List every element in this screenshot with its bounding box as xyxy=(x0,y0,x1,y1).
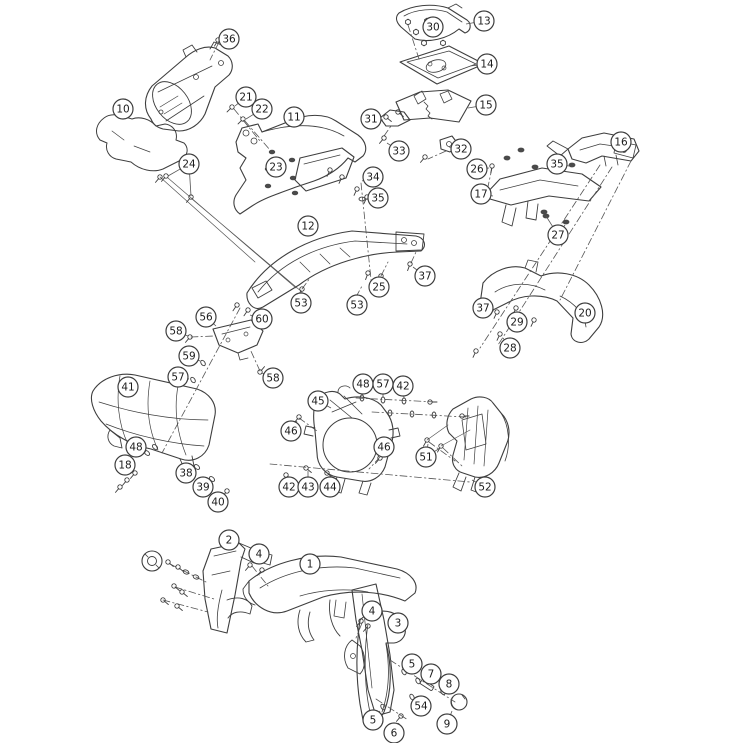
callout-16[interactable]: 16 xyxy=(611,132,631,152)
svg-text:59: 59 xyxy=(182,351,195,363)
svg-text:21: 21 xyxy=(239,92,252,104)
part-14-bottom-plate xyxy=(400,46,484,84)
nut-icon xyxy=(406,19,411,25)
callout-24[interactable]: 24 xyxy=(179,154,199,174)
screw-icon xyxy=(114,484,123,494)
callout-59[interactable]: 59 xyxy=(179,346,199,366)
callout-2[interactable]: 2 xyxy=(219,530,239,550)
callout-48[interactable]: 48 xyxy=(126,437,146,457)
svg-text:11: 11 xyxy=(287,112,300,124)
callout-labels: 3610212211242312133014153133321635261734… xyxy=(113,11,631,743)
rubber-washer-icon xyxy=(532,165,539,170)
callout-37[interactable]: 37 xyxy=(415,266,435,286)
callout-53[interactable]: 53 xyxy=(291,293,311,313)
svg-text:7: 7 xyxy=(428,669,435,681)
svg-text:53: 53 xyxy=(350,300,363,312)
callout-5[interactable]: 5 xyxy=(402,654,422,674)
svg-text:25: 25 xyxy=(372,282,385,294)
svg-text:20: 20 xyxy=(578,308,591,320)
svg-text:48: 48 xyxy=(356,379,369,391)
svg-text:42: 42 xyxy=(282,482,295,494)
svg-text:48: 48 xyxy=(129,442,142,454)
svg-text:29: 29 xyxy=(510,317,523,329)
svg-text:54: 54 xyxy=(414,701,428,713)
svg-text:6: 6 xyxy=(391,728,398,740)
rubber-washer-icon xyxy=(563,220,570,225)
screw-icon xyxy=(244,562,253,572)
callout-12[interactable]: 12 xyxy=(298,216,318,236)
svg-text:5: 5 xyxy=(409,659,416,671)
callout-17[interactable]: 17 xyxy=(471,184,491,204)
callout-18[interactable]: 18 xyxy=(115,455,135,475)
callout-25[interactable]: 25 xyxy=(369,277,389,297)
callout-54[interactable]: 54 xyxy=(411,696,431,716)
screw-icon xyxy=(406,261,413,271)
callout-8[interactable]: 8 xyxy=(439,674,459,694)
callout-51[interactable]: 51 xyxy=(416,447,436,467)
callout-33[interactable]: 33 xyxy=(389,141,409,161)
callout-57-2[interactable]: 57 xyxy=(373,374,393,394)
svg-text:8: 8 xyxy=(446,679,453,691)
callout-leader xyxy=(190,174,191,196)
screw-icon xyxy=(395,713,404,723)
callout-5-2[interactable]: 5 xyxy=(363,710,383,730)
callout-46-2[interactable]: 46 xyxy=(374,437,394,457)
rubber-washer-icon xyxy=(504,156,511,161)
svg-text:41: 41 xyxy=(121,382,134,394)
callout-57[interactable]: 57 xyxy=(168,367,188,387)
callout-leader xyxy=(413,267,417,270)
callout-35-2[interactable]: 35 xyxy=(368,188,388,208)
svg-text:12: 12 xyxy=(301,221,314,233)
svg-text:57: 57 xyxy=(376,379,389,391)
svg-text:34: 34 xyxy=(366,172,380,184)
svg-text:14: 14 xyxy=(480,59,494,71)
callout-36[interactable]: 36 xyxy=(219,29,239,49)
svg-text:4: 4 xyxy=(256,549,263,561)
callout-leader xyxy=(470,65,477,66)
rubber-washer-icon xyxy=(518,148,525,153)
svg-text:51: 51 xyxy=(419,452,432,464)
callout-28[interactable]: 28 xyxy=(500,338,520,358)
callout-23[interactable]: 23 xyxy=(266,157,286,177)
svg-text:45: 45 xyxy=(311,396,324,408)
svg-text:36: 36 xyxy=(222,34,236,46)
screw-icon xyxy=(185,194,194,204)
callout-15[interactable]: 15 xyxy=(476,95,496,115)
callout-26[interactable]: 26 xyxy=(467,159,487,179)
part-9-cap xyxy=(451,694,467,710)
screw-icon xyxy=(165,559,175,568)
svg-text:23: 23 xyxy=(269,162,282,174)
screw-icon xyxy=(225,104,235,114)
callout-11[interactable]: 11 xyxy=(284,107,304,127)
callout-60[interactable]: 60 xyxy=(252,309,272,329)
screw-icon xyxy=(256,567,265,577)
svg-text:39: 39 xyxy=(196,482,209,494)
washer-icon xyxy=(359,197,365,201)
callout-1[interactable]: 1 xyxy=(300,554,320,574)
callout-3[interactable]: 3 xyxy=(388,613,408,633)
callout-42-2[interactable]: 42 xyxy=(279,477,299,497)
screw-icon xyxy=(154,174,163,184)
callout-leader xyxy=(168,169,180,176)
part-17-splash-guard xyxy=(483,168,601,226)
callout-leader xyxy=(546,216,553,227)
callout-leader xyxy=(468,107,476,108)
callout-22[interactable]: 22 xyxy=(252,99,272,119)
callout-48-2[interactable]: 48 xyxy=(353,374,373,394)
callout-4-2[interactable]: 4 xyxy=(362,601,382,621)
svg-text:52: 52 xyxy=(478,482,491,494)
screw-icon xyxy=(242,307,251,317)
svg-text:37: 37 xyxy=(476,303,489,315)
part-12-rear-fender xyxy=(247,231,425,308)
svg-text:30: 30 xyxy=(426,22,439,34)
svg-text:58: 58 xyxy=(169,326,182,338)
callout-41[interactable]: 41 xyxy=(118,377,138,397)
screw-icon xyxy=(174,603,184,612)
svg-text:40: 40 xyxy=(211,497,224,509)
screw-icon xyxy=(362,623,371,633)
callout-53-2[interactable]: 53 xyxy=(347,295,367,315)
part-11-carrier-bracket xyxy=(234,115,366,214)
callout-leader xyxy=(246,114,254,119)
svg-text:53: 53 xyxy=(294,298,307,310)
screw-icon xyxy=(236,116,246,126)
part-20-lower-mudguard xyxy=(481,260,603,342)
svg-text:13: 13 xyxy=(477,16,490,28)
screw-icon xyxy=(179,589,189,598)
screw-icon xyxy=(364,270,371,280)
washer-icon xyxy=(402,398,406,404)
callout-leader xyxy=(235,103,238,106)
svg-text:44: 44 xyxy=(323,482,337,494)
svg-text:27: 27 xyxy=(551,230,564,242)
svg-text:3: 3 xyxy=(395,618,402,630)
svg-text:35: 35 xyxy=(371,193,384,205)
callout-leader-lines xyxy=(133,23,569,724)
callout-14[interactable]: 14 xyxy=(477,54,497,74)
callout-9[interactable]: 9 xyxy=(437,714,457,734)
callout-44[interactable]: 44 xyxy=(320,477,340,497)
svg-text:38: 38 xyxy=(179,468,192,480)
callout-45[interactable]: 45 xyxy=(308,391,328,411)
svg-text:4: 4 xyxy=(369,606,376,618)
svg-text:43: 43 xyxy=(301,482,314,494)
screw-icon xyxy=(383,114,393,123)
washer-icon xyxy=(380,703,386,710)
svg-text:22: 22 xyxy=(255,104,268,116)
callout-43[interactable]: 43 xyxy=(298,477,318,497)
callout-34[interactable]: 34 xyxy=(363,167,383,187)
callout-27[interactable]: 27 xyxy=(548,225,568,245)
parts-diagram: 3610212211242312133014153133321635261734… xyxy=(0,0,743,743)
svg-text:26: 26 xyxy=(470,164,484,176)
callout-40[interactable]: 40 xyxy=(208,492,228,512)
screw-icon xyxy=(378,135,387,145)
callout-32[interactable]: 32 xyxy=(451,139,471,159)
svg-text:5: 5 xyxy=(370,715,377,727)
callout-7[interactable]: 7 xyxy=(421,664,441,684)
svg-text:33: 33 xyxy=(392,146,405,158)
svg-text:42: 42 xyxy=(396,381,409,393)
svg-text:28: 28 xyxy=(503,343,516,355)
washer-icon xyxy=(200,359,207,366)
screw-icon xyxy=(471,348,479,358)
screw-icon xyxy=(395,109,405,118)
washer-icon xyxy=(381,397,385,403)
screw-icon xyxy=(121,477,130,487)
svg-text:9: 9 xyxy=(444,719,451,731)
callout-37-2[interactable]: 37 xyxy=(473,298,493,318)
svg-text:60: 60 xyxy=(255,314,268,326)
callout-42[interactable]: 42 xyxy=(393,376,413,396)
svg-text:46: 46 xyxy=(377,442,391,454)
svg-text:17: 17 xyxy=(474,189,487,201)
svg-text:24: 24 xyxy=(182,159,196,171)
callout-35[interactable]: 35 xyxy=(547,154,567,174)
svg-text:58: 58 xyxy=(266,373,279,385)
svg-text:56: 56 xyxy=(199,312,213,324)
svg-text:32: 32 xyxy=(454,144,467,156)
callout-6[interactable]: 6 xyxy=(384,723,404,743)
callout-46[interactable]: 46 xyxy=(281,421,301,441)
callout-31[interactable]: 31 xyxy=(361,109,381,129)
callout-20[interactable]: 20 xyxy=(575,303,595,323)
callout-56[interactable]: 56 xyxy=(196,307,216,327)
callout-leader xyxy=(387,143,391,145)
washer-icon xyxy=(190,376,197,383)
svg-text:35: 35 xyxy=(550,159,563,171)
svg-text:16: 16 xyxy=(614,137,628,149)
rubber-washer-icon xyxy=(569,163,576,168)
svg-text:37: 37 xyxy=(418,271,431,283)
nut-icon xyxy=(441,40,446,46)
screw-icon xyxy=(529,317,537,327)
screw-icon xyxy=(171,583,181,592)
screw-icon xyxy=(352,186,360,196)
svg-text:10: 10 xyxy=(116,104,129,116)
callout-10[interactable]: 10 xyxy=(113,99,133,119)
callout-39[interactable]: 39 xyxy=(193,477,213,497)
svg-text:2: 2 xyxy=(226,535,233,547)
callout-58[interactable]: 58 xyxy=(166,321,186,341)
svg-text:15: 15 xyxy=(479,100,492,112)
svg-text:57: 57 xyxy=(171,372,184,384)
callout-38[interactable]: 38 xyxy=(176,463,196,483)
callout-29[interactable]: 29 xyxy=(507,312,527,332)
svg-text:18: 18 xyxy=(118,460,131,472)
svg-text:1: 1 xyxy=(307,559,314,571)
callout-30[interactable]: 30 xyxy=(423,17,443,37)
svg-text:46: 46 xyxy=(284,426,298,438)
callout-4[interactable]: 4 xyxy=(249,544,269,564)
parts-diagram-page: 3610212211242312133014153133321635261734… xyxy=(0,0,743,743)
nut-icon xyxy=(414,29,419,35)
screw-icon xyxy=(419,154,428,164)
svg-text:31: 31 xyxy=(364,114,377,126)
part-52-mount-bracket xyxy=(447,397,509,493)
callout-52[interactable]: 52 xyxy=(475,477,495,497)
callout-58-2[interactable]: 58 xyxy=(263,368,283,388)
callout-leader xyxy=(327,406,331,408)
callout-13[interactable]: 13 xyxy=(474,11,494,31)
